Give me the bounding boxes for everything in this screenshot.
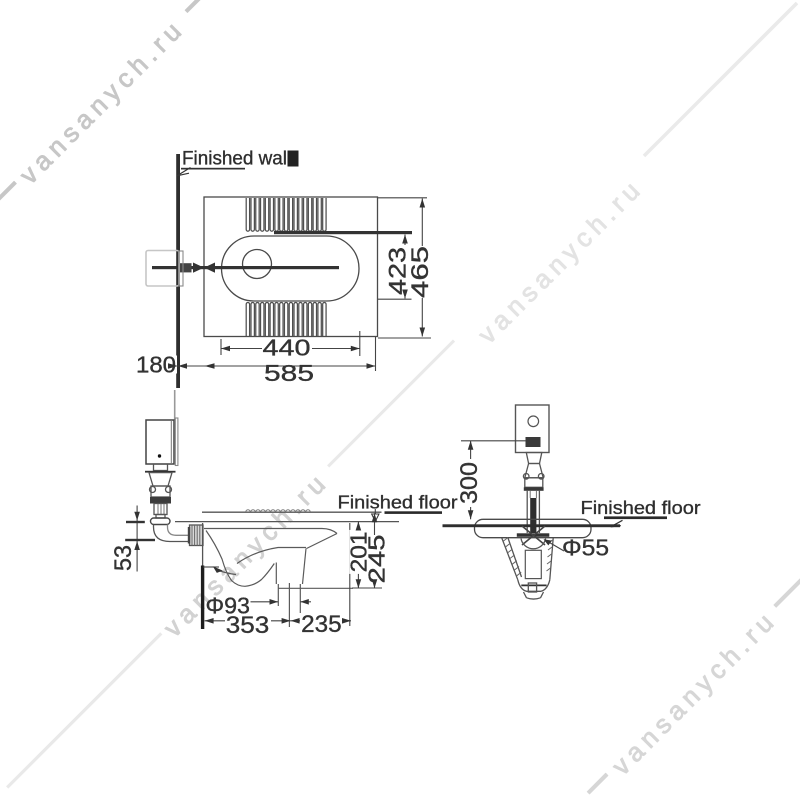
svg-text:300: 300: [456, 462, 483, 504]
svg-text:245: 245: [364, 535, 390, 584]
svg-text:465: 465: [407, 246, 434, 298]
svg-text:235: 235: [301, 611, 342, 638]
svg-text:53: 53: [110, 545, 137, 571]
svg-text:vansanych.ru: vansanych.ru: [606, 604, 783, 781]
svg-text:Φ55: Φ55: [562, 535, 609, 561]
svg-text:Finished floor: Finished floor: [338, 492, 458, 513]
svg-text:vansanych.ru: vansanych.ru: [472, 172, 649, 349]
svg-text:353: 353: [226, 612, 270, 639]
svg-text:vansanych.ru: vansanych.ru: [13, 12, 190, 189]
svg-text:440: 440: [263, 335, 311, 361]
svg-text:585: 585: [264, 360, 314, 386]
svg-text:Finished wal: Finished wal: [182, 149, 287, 170]
svg-text:Finished floor: Finished floor: [581, 497, 701, 518]
